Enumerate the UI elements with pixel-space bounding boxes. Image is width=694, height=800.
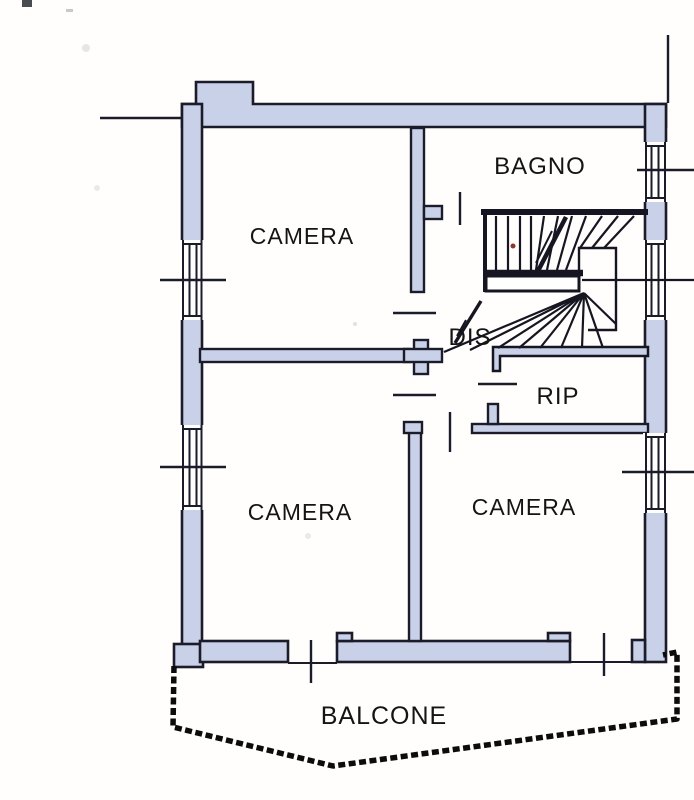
floorplan-svg: CAMERA BAGNO DIS RIP CAMERA CAMERA BALCO… bbox=[0, 0, 694, 800]
scan-smudge-2 bbox=[94, 185, 100, 191]
room-camera-bottom-right: CAMERA bbox=[472, 494, 576, 520]
room-label-dis: DIS bbox=[448, 324, 491, 351]
wall-left-corner-block bbox=[174, 644, 203, 667]
wall-bottom-left-segment bbox=[200, 641, 288, 662]
room-balcone: BALCONE bbox=[321, 702, 447, 730]
stair-upper-treads bbox=[496, 216, 634, 270]
room-label-bagno: BAGNO bbox=[494, 153, 586, 180]
wall-bottom-rooms-partition-cap bbox=[404, 422, 422, 433]
wall-left bbox=[182, 104, 202, 645]
wall-bottom-mid-segment bbox=[337, 641, 570, 662]
wall-right-foot bbox=[632, 640, 645, 662]
scan-artifacts bbox=[22, 0, 516, 539]
floorplan-page: CAMERA BAGNO DIS RIP CAMERA CAMERA BALCO… bbox=[0, 0, 694, 800]
stair-bottom-parapet bbox=[493, 347, 648, 371]
wall-bottom-rooms-partition bbox=[409, 425, 421, 641]
wall-top bbox=[182, 82, 666, 127]
room-rip: RIP bbox=[536, 383, 579, 410]
wall-bagno-door-stub bbox=[424, 206, 442, 219]
room-dis: DIS bbox=[448, 324, 491, 351]
room-label-rip: RIP bbox=[536, 383, 579, 410]
scan-smudge-1 bbox=[82, 44, 90, 52]
room-label-camera-bottom-left: CAMERA bbox=[248, 499, 352, 525]
scan-smudge-4 bbox=[353, 322, 357, 326]
door-marks bbox=[311, 192, 604, 683]
wall-camera-top-bottom bbox=[200, 349, 410, 362]
scan-speck-top-left bbox=[22, 0, 32, 7]
room-label-camera-bottom-right: CAMERA bbox=[472, 494, 576, 520]
wall-bottom-jamb-bump-2 bbox=[548, 633, 570, 641]
room-camera-bottom-left: CAMERA bbox=[248, 499, 352, 525]
wall-rip-stub bbox=[488, 404, 498, 424]
wall-bottom-jamb-bump-1 bbox=[337, 633, 352, 641]
wall-rip-bottom bbox=[472, 424, 648, 433]
room-camera-top-left: CAMERA bbox=[250, 223, 354, 249]
room-label-camera-top-left: CAMERA bbox=[250, 223, 354, 249]
scan-stain-red bbox=[511, 244, 516, 249]
interior-walls bbox=[200, 128, 648, 641]
wall-camera-bagno-partition bbox=[411, 128, 424, 292]
room-bagno: BAGNO bbox=[494, 153, 586, 180]
room-label-balcone: BALCONE bbox=[321, 702, 447, 730]
scan-smudge-3 bbox=[305, 533, 311, 539]
stair-landing-bar bbox=[486, 276, 579, 291]
scan-speck-top-left-2 bbox=[66, 9, 73, 12]
wall-end-cross-cap-h bbox=[404, 349, 442, 362]
